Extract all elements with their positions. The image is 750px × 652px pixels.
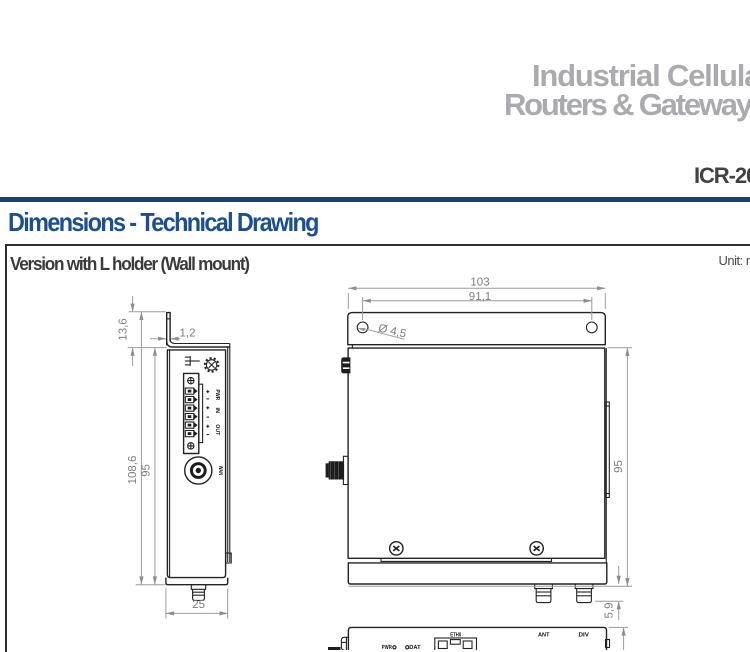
svg-text:108,6: 108,6 [127, 456, 139, 485]
svg-text:1,2: 1,2 [180, 328, 196, 340]
svg-text:OUT: OUT [214, 424, 220, 436]
svg-text:IN: IN [214, 407, 220, 413]
svg-text:Ø 4,5: Ø 4,5 [377, 323, 407, 341]
svg-text:PWR: PWR [382, 644, 392, 650]
svg-text:5,9: 5,9 [604, 603, 616, 619]
svg-text:WAN: WAN [217, 466, 223, 476]
svg-text:103: 103 [470, 277, 489, 289]
svg-text:91,1: 91,1 [469, 291, 491, 303]
svg-text:PWR: PWR [214, 390, 220, 401]
svg-text:13,6: 13,6 [118, 318, 130, 340]
svg-text:ANT: ANT [538, 632, 550, 639]
svg-text:DAT: DAT [409, 644, 421, 650]
svg-text:DIV: DIV [579, 632, 590, 639]
svg-text:95: 95 [613, 460, 625, 473]
svg-text:25: 25 [192, 599, 205, 611]
svg-text:95: 95 [140, 464, 152, 477]
